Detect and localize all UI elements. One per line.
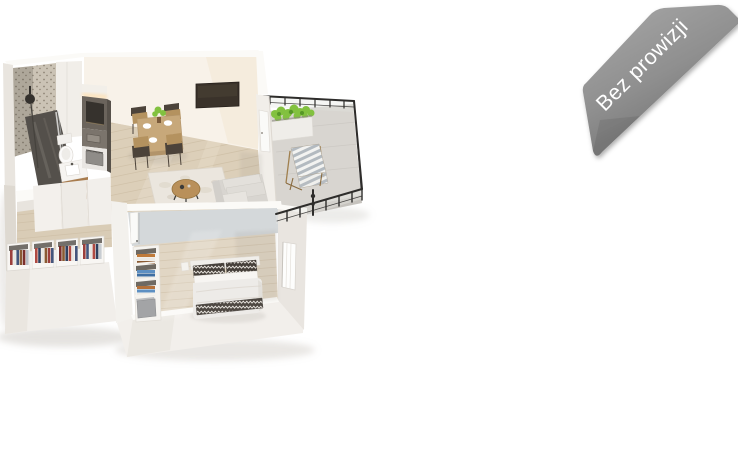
door-handle-icon — [261, 132, 263, 134]
balcony-planter — [271, 105, 315, 142]
plate — [164, 120, 172, 126]
folded-clothes — [137, 286, 155, 289]
faucet-icon — [71, 163, 74, 166]
chair-seat — [133, 136, 149, 148]
kitchen — [82, 84, 111, 173]
plate — [143, 123, 151, 129]
kitchen-niche — [86, 101, 104, 125]
folded-clothes — [137, 254, 155, 257]
door-handle-icon — [136, 240, 138, 242]
folded-clothes — [137, 270, 155, 273]
balcony-door — [259, 110, 270, 152]
bedroom-window — [282, 242, 296, 290]
chair-seat — [166, 133, 182, 145]
table-decor — [180, 185, 184, 189]
sink — [65, 164, 80, 176]
vase — [157, 117, 161, 123]
closet-door — [60, 180, 88, 229]
floorplan-canvas: Bez prowizji — [0, 0, 738, 450]
storage-box — [137, 299, 156, 318]
closet-door — [86, 177, 112, 226]
closet-door — [33, 183, 62, 232]
shelf-unit — [133, 245, 161, 322]
shower-head-icon — [25, 94, 35, 104]
tv-screen-gloss — [198, 84, 237, 98]
apartment-floorplan-render: Bez prowizji — [0, 0, 738, 450]
plate — [149, 137, 157, 143]
bedroom-door — [130, 212, 138, 244]
bed — [181, 256, 266, 323]
kitchen-side-panel — [107, 99, 111, 173]
nightstand — [181, 262, 189, 271]
